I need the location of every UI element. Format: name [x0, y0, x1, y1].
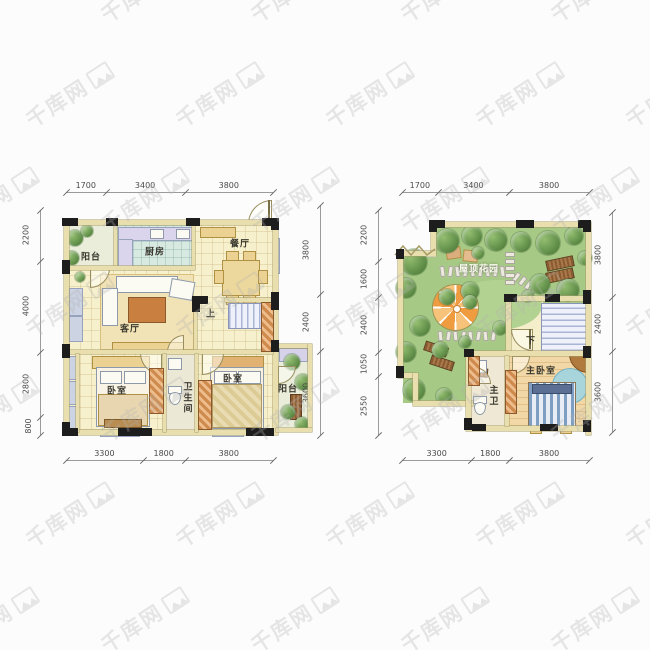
dim-line — [40, 210, 41, 435]
wall-pier — [468, 356, 480, 386]
kitchen-counter — [118, 239, 133, 267]
wall — [276, 428, 312, 432]
tree-icon — [432, 342, 448, 358]
wall-black — [583, 346, 591, 358]
room-label-master-bath: 主卫 — [487, 385, 500, 407]
dim-label: 3800 — [219, 181, 239, 190]
dim-label: 1800 — [480, 449, 500, 458]
tree-icon — [435, 229, 459, 253]
dim-line — [612, 212, 613, 432]
dim-label: 1700 — [410, 181, 430, 190]
cabinet — [69, 316, 83, 342]
wall-black — [118, 428, 152, 436]
dim-label: 1600 — [359, 269, 368, 289]
sink — [150, 229, 164, 239]
wall — [114, 225, 117, 266]
tree-icon — [75, 272, 85, 282]
wall-black — [62, 344, 70, 358]
dim-label: 2400 — [301, 312, 310, 332]
dim-line — [402, 460, 589, 461]
dim-label: 3600 — [593, 381, 602, 401]
stairs-up-label: 上 — [206, 307, 216, 320]
wall — [506, 296, 511, 356]
room-label-bathroom: 卫生间 — [181, 382, 194, 415]
wall-black — [62, 428, 78, 436]
dim-tick — [609, 429, 616, 436]
dim-line — [378, 210, 379, 435]
wall-black — [396, 249, 404, 259]
room-label-roof-garden: 屋顶花园 — [459, 262, 499, 275]
tree-icon — [536, 231, 560, 255]
dim-label: 2200 — [21, 225, 30, 245]
path-stone — [505, 266, 515, 271]
dim-label: 2400 — [593, 314, 602, 334]
bathroom-sink — [168, 358, 182, 370]
tree-icon — [493, 321, 507, 335]
path-stone — [505, 273, 515, 278]
wall — [398, 251, 403, 378]
dim-label: 3800 — [539, 449, 559, 458]
floorplan-canvas: 阳台 厨房 餐厅 客厅 卧室 卫生间 卧室 阳台 上 170034003800 … — [0, 0, 650, 650]
bed-bench — [104, 419, 142, 428]
room-label-kitchen: 厨房 — [145, 245, 165, 258]
wall-black — [271, 292, 279, 310]
wall — [413, 401, 473, 406]
path-stone — [505, 259, 515, 264]
chair — [258, 270, 268, 284]
wall-black — [271, 340, 279, 352]
duvet — [212, 384, 262, 428]
dim-line — [66, 460, 273, 461]
chair — [214, 270, 224, 284]
stairs-down — [541, 303, 588, 352]
wall-black — [246, 428, 274, 436]
wall — [69, 266, 195, 270]
dim-label: 2550 — [359, 396, 368, 416]
wall-black — [396, 366, 404, 378]
wall-pier — [505, 370, 517, 414]
dim-line — [66, 192, 273, 193]
wall-black — [271, 218, 279, 230]
dim-line — [320, 205, 321, 435]
wall-black — [429, 220, 437, 232]
tree-icon — [439, 289, 455, 305]
path-stone — [505, 252, 515, 257]
wall-black — [62, 218, 78, 226]
stairs-up — [228, 303, 262, 329]
tree-icon — [410, 316, 430, 336]
wall-black — [192, 296, 200, 312]
tree-icon — [459, 336, 471, 348]
room-label-master-bedroom: 主卧室 — [526, 364, 556, 377]
tree-icon — [565, 227, 583, 245]
tree-icon — [281, 405, 295, 419]
wall — [192, 225, 195, 266]
wall-pier — [149, 368, 164, 414]
dim-label: 2800 — [21, 374, 30, 394]
dim-label: 3800 — [593, 244, 602, 264]
chair — [243, 251, 256, 261]
room-label-dining: 餐厅 — [230, 237, 250, 250]
dim-label: 3300 — [426, 449, 446, 458]
dim-label: 3800 — [301, 239, 310, 259]
tree-icon — [530, 274, 550, 294]
room-label-balcony: 阳台 — [81, 250, 101, 263]
path-stone — [445, 331, 452, 342]
cabinet — [69, 288, 83, 316]
room-label-bedroom: 卧室 — [223, 372, 243, 385]
dim-line — [402, 192, 589, 193]
wall — [64, 220, 278, 225]
tree-icon — [462, 226, 482, 246]
wall-pier — [198, 380, 212, 430]
wall-black — [472, 424, 486, 431]
wall-black — [545, 294, 560, 302]
chair — [226, 251, 239, 261]
tree-icon — [511, 232, 531, 252]
dim-label: 4000 — [21, 296, 30, 316]
wall — [64, 220, 69, 435]
dim-label: 3800 — [539, 181, 559, 190]
tree-icon — [485, 229, 507, 251]
wall-black — [516, 220, 534, 228]
stairs-down-label: 下 — [526, 334, 536, 347]
wall — [276, 344, 312, 348]
wall — [466, 351, 591, 356]
path-stone — [475, 331, 482, 342]
wall-black — [583, 420, 591, 432]
dim-label: 3400 — [135, 181, 155, 190]
coffee-table — [128, 297, 166, 323]
stove — [176, 229, 190, 239]
sofa — [102, 288, 118, 326]
wall-black — [186, 218, 200, 226]
dim-label: 1700 — [76, 181, 96, 190]
wall — [431, 222, 591, 227]
room-label-balcony: 阳台 — [278, 382, 298, 395]
path-stone — [437, 331, 443, 341]
dim-tick — [375, 432, 382, 439]
wall-black — [62, 260, 70, 274]
dim-label: 800 — [24, 418, 33, 433]
dim-label: 3800 — [219, 449, 239, 458]
tree-icon — [472, 247, 484, 259]
pillow — [100, 371, 122, 384]
wall — [76, 354, 79, 432]
path-stone — [505, 280, 515, 285]
dim-label: 1050 — [359, 354, 368, 374]
pillow — [124, 371, 146, 384]
wall-black — [464, 418, 472, 430]
wall-black — [540, 424, 558, 431]
room-label-bedroom: 卧室 — [107, 384, 127, 397]
dim-label: 2200 — [359, 225, 368, 245]
wall-black — [464, 349, 474, 357]
dining-table — [222, 260, 260, 296]
path-stone — [447, 266, 453, 278]
path-stone — [482, 331, 488, 341]
dim-label: 3400 — [463, 181, 483, 190]
wall — [308, 344, 312, 432]
tree-icon — [81, 225, 93, 237]
wall-black — [106, 218, 118, 226]
wall-black — [583, 220, 591, 232]
dim-label: 1800 — [153, 449, 173, 458]
tree-icon — [463, 295, 477, 309]
wall — [586, 222, 591, 435]
dim-label: 3300 — [94, 449, 114, 458]
path-stone — [452, 331, 458, 341]
room-label-living: 客厅 — [120, 322, 140, 335]
dim-label: 2400 — [359, 315, 368, 335]
wall — [69, 350, 273, 354]
wall-black — [583, 290, 591, 304]
wall-black — [504, 294, 517, 302]
pillow — [532, 384, 572, 394]
